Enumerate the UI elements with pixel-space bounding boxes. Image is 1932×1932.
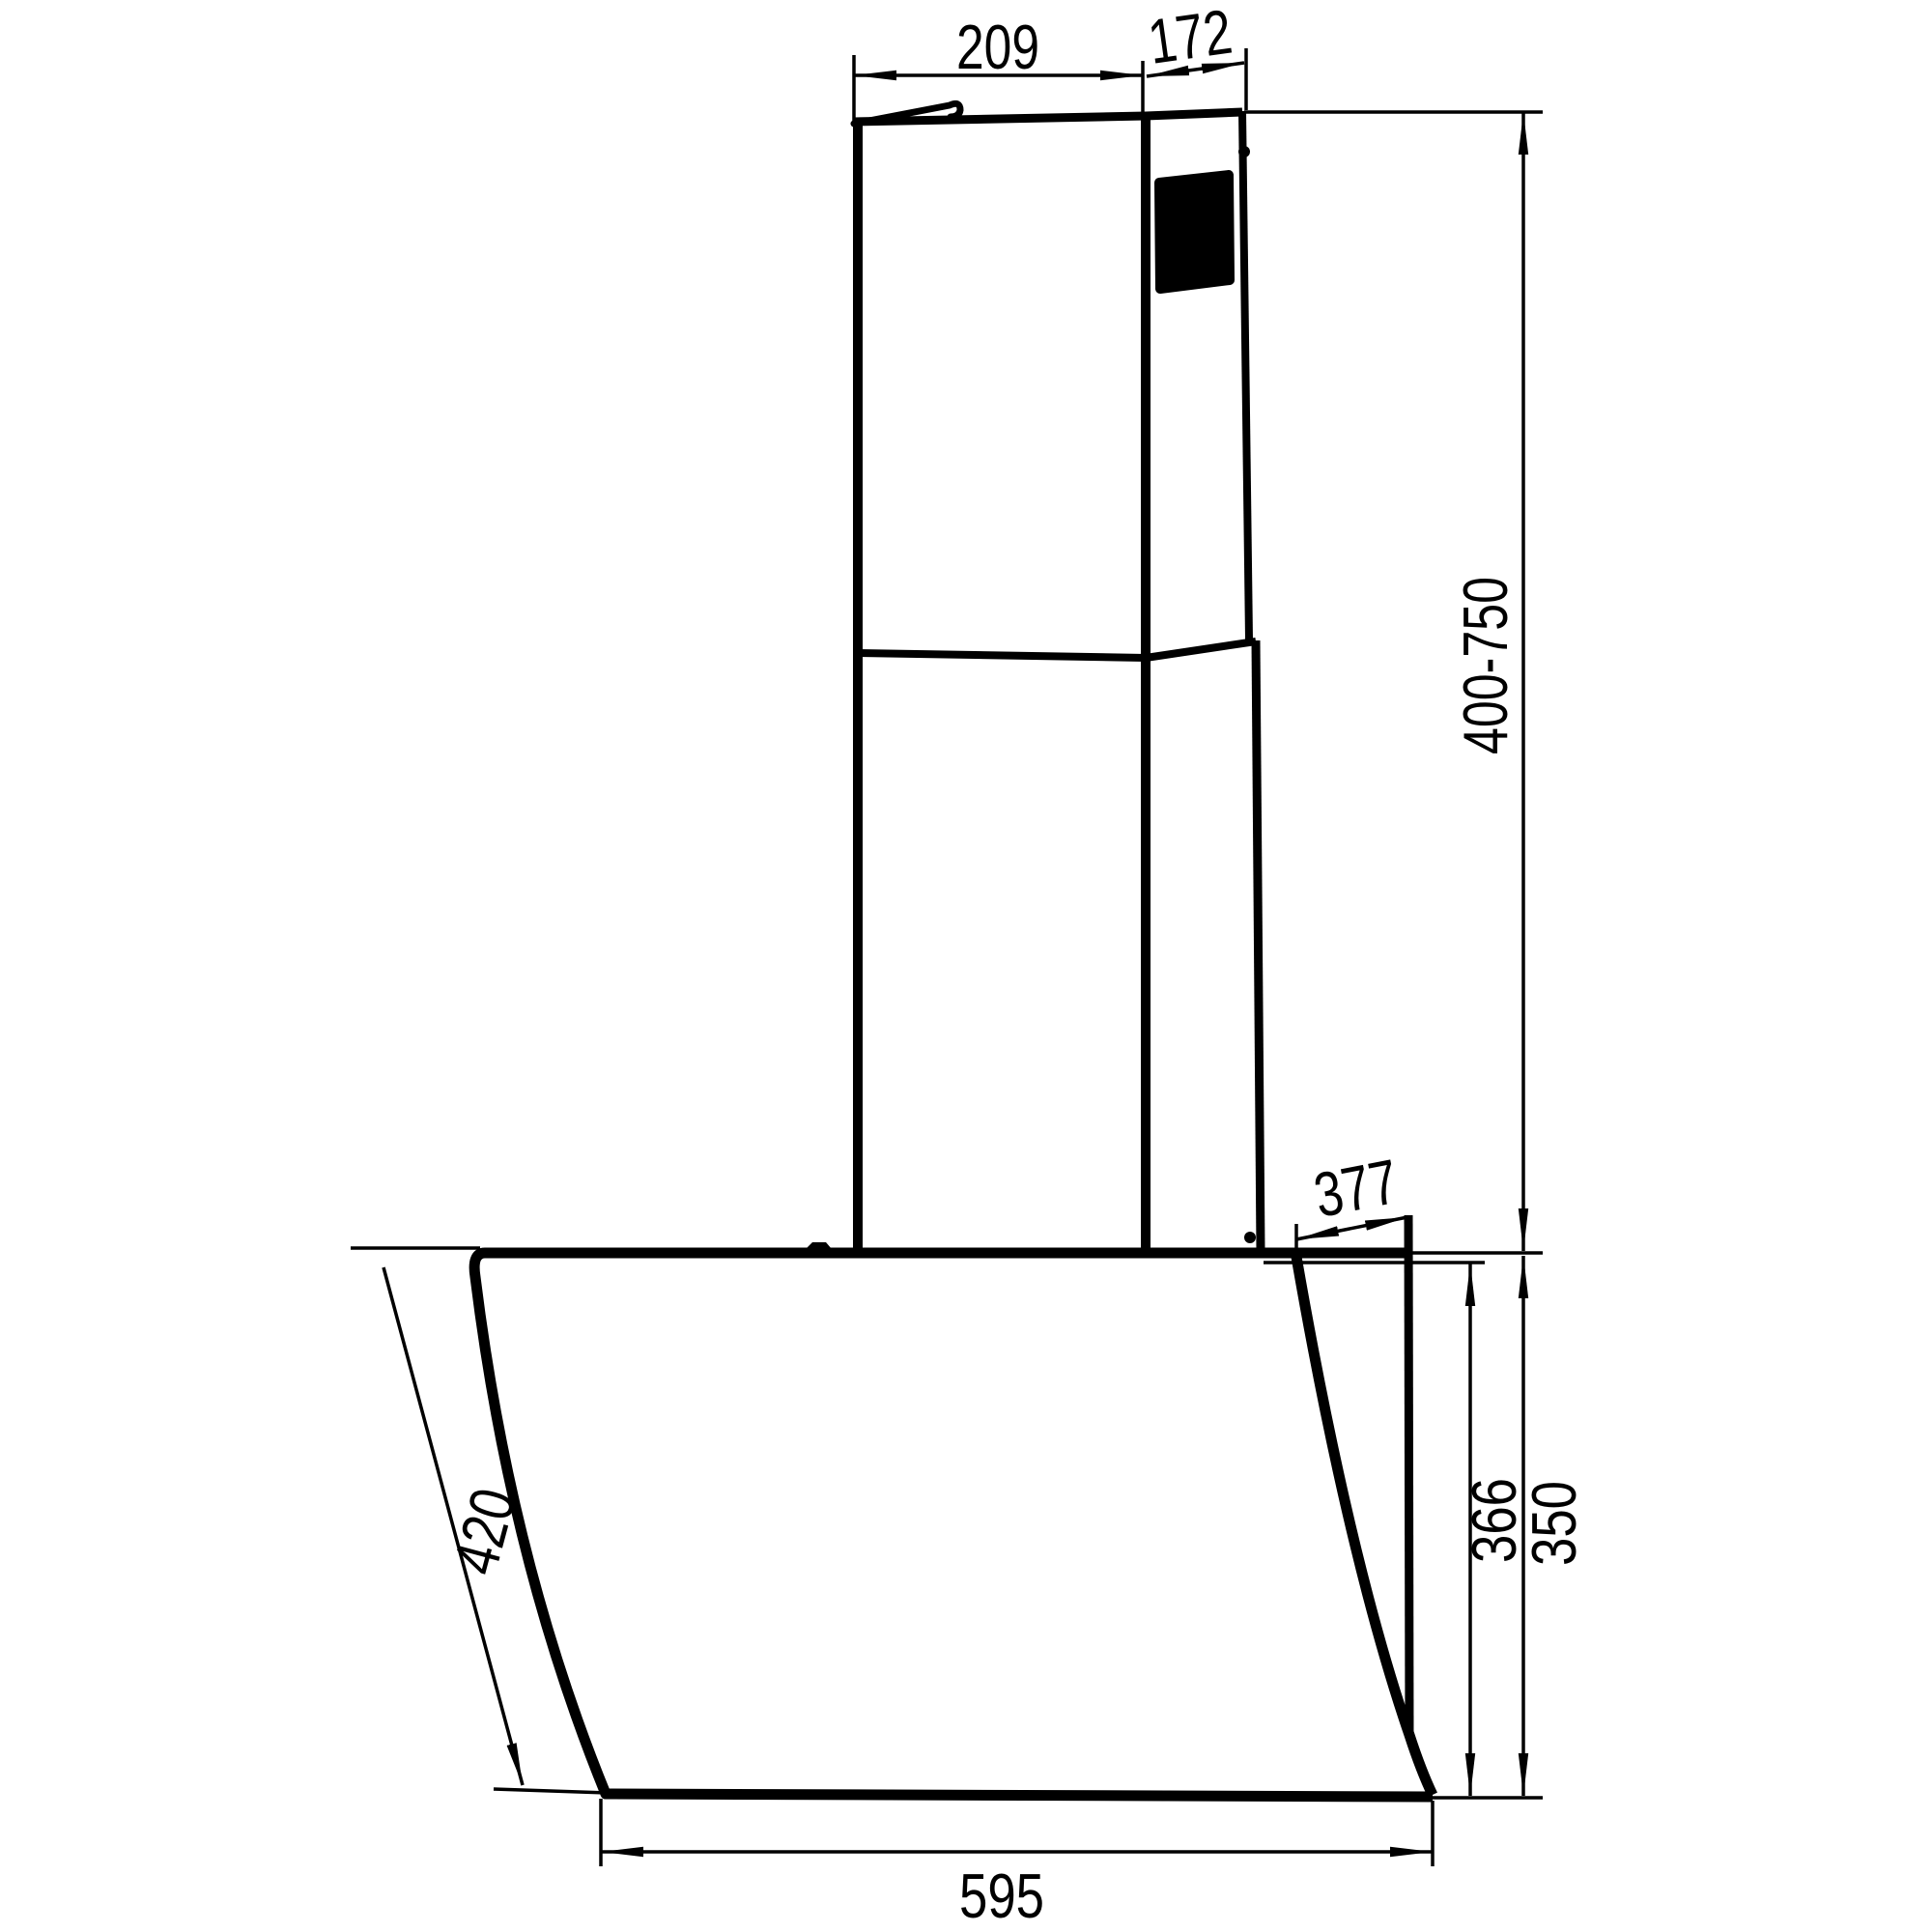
range-hood-dimension-drawing: 209 172 400-750 377 420 366 350 595 xyxy=(0,0,1932,1932)
chimney-upper-side-edge xyxy=(1242,111,1249,639)
fastener-dot-lower xyxy=(1244,1232,1256,1243)
chimney-height-range-label: 400-750 xyxy=(1450,577,1520,754)
hood-top-hinge-bump xyxy=(806,1242,832,1249)
hood-rear-right-edge xyxy=(1408,1215,1409,1739)
hood-body-outline xyxy=(474,1215,1433,1797)
fastener-dot-upper xyxy=(1238,146,1250,157)
technical-drawing-canvas: 209 172 400-750 377 420 366 350 595 xyxy=(0,0,1932,1932)
chimney-outline xyxy=(854,103,1261,1251)
body-top-depth-label: 377 xyxy=(1309,1146,1404,1231)
body-width-label: 595 xyxy=(959,1861,1044,1931)
dimension-lines xyxy=(384,63,1523,1852)
chimney-section-joint xyxy=(858,641,1256,658)
glass-slant-length-label: 420 xyxy=(440,1481,529,1581)
chimney-width-label: 209 xyxy=(956,12,1039,82)
chimney-depth-label: 172 xyxy=(1144,0,1236,77)
body-height-label: 350 xyxy=(1519,1481,1589,1566)
chimney-vent-grille xyxy=(1159,175,1230,289)
ext-glass-bottom-left xyxy=(494,1789,608,1793)
chimney-lower-side-edge xyxy=(1256,640,1261,1251)
dimension-labels: 209 172 400-750 377 420 366 350 595 xyxy=(440,0,1589,1931)
hood-top-left-bottom-outline xyxy=(474,1253,1433,1797)
